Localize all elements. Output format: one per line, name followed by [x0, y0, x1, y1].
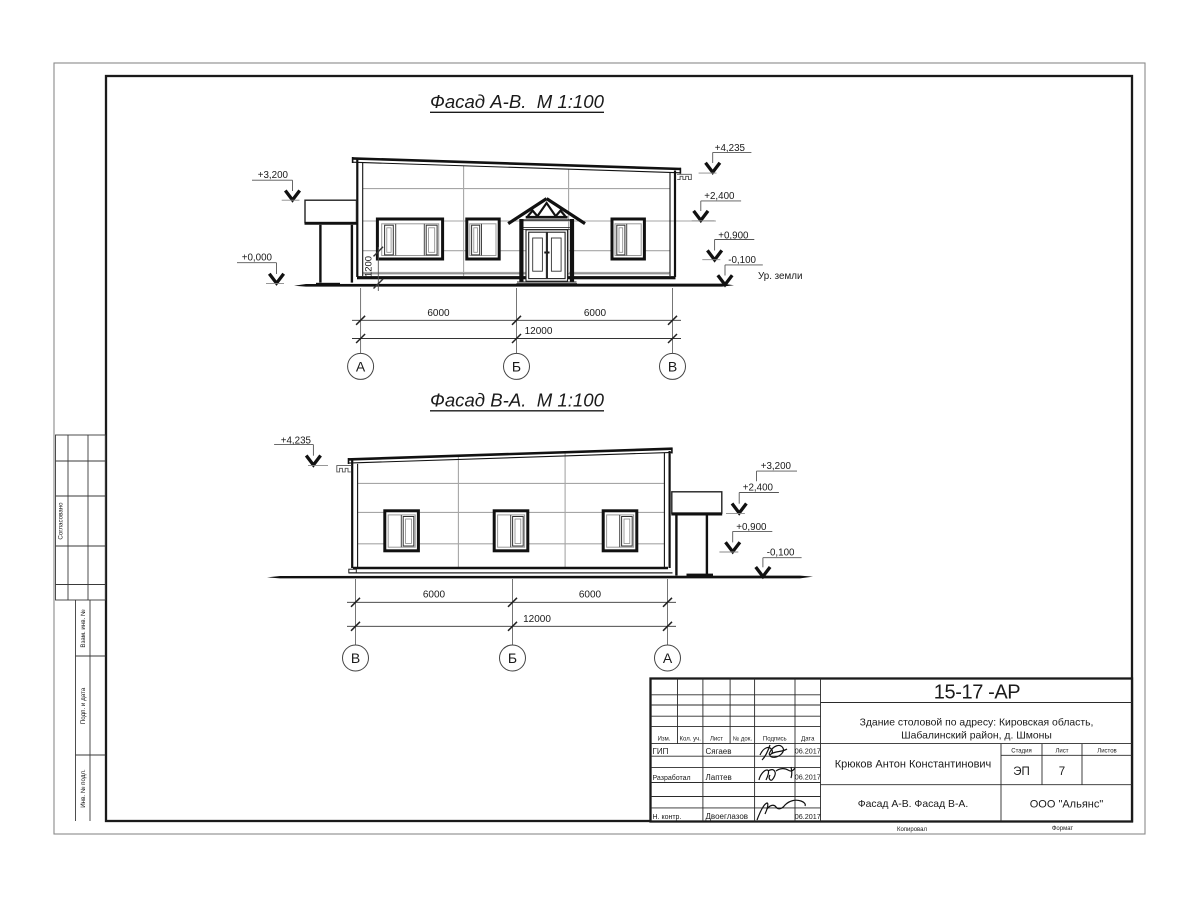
svg-text:+3,200: +3,200: [258, 170, 289, 181]
svg-text:Здание столовой по адресу: Кир: Здание столовой по адресу: Кировская обл…: [860, 717, 1094, 729]
svg-text:06.2017: 06.2017: [795, 812, 821, 821]
svg-text:ГИП: ГИП: [653, 747, 669, 756]
svg-text:Согласовано: Согласовано: [58, 502, 65, 540]
svg-text:Подп. и дата: Подп. и дата: [80, 687, 87, 724]
svg-text:+2,400: +2,400: [743, 482, 774, 493]
svg-text:6000: 6000: [423, 590, 446, 601]
svg-text:Подпись: Подпись: [763, 737, 787, 743]
svg-text:Инв. № подл.: Инв. № подл.: [80, 769, 87, 808]
svg-text:15-17 -АР: 15-17 -АР: [934, 682, 1021, 704]
svg-text:Лист: Лист: [710, 737, 723, 743]
svg-text:А: А: [356, 358, 366, 374]
svg-text:Фасад А-В. Фасад В-А.: Фасад А-В. Фасад В-А.: [858, 799, 969, 810]
svg-text:+3,200: +3,200: [761, 461, 792, 472]
svg-text:ЭП: ЭП: [1013, 766, 1030, 778]
svg-text:+2,400: +2,400: [704, 191, 735, 202]
svg-text:В: В: [668, 358, 677, 374]
svg-text:-0,100: -0,100: [728, 255, 756, 266]
svg-text:Листов: Листов: [1097, 749, 1117, 755]
svg-text:06.2017: 06.2017: [795, 773, 821, 782]
svg-text:Формат: Формат: [1052, 826, 1074, 832]
svg-text:ООО "Альянс": ООО "Альянс": [1030, 799, 1104, 811]
svg-text:-0,100: -0,100: [767, 548, 795, 559]
svg-text:06.2017: 06.2017: [795, 747, 821, 756]
svg-text:Сягаев: Сягаев: [706, 747, 732, 756]
svg-text:Копировал: Копировал: [897, 827, 928, 833]
svg-text:7: 7: [1059, 766, 1065, 778]
svg-text:Лаптев: Лаптев: [706, 773, 732, 782]
svg-text:1200: 1200: [364, 256, 375, 277]
svg-text:Дата: Дата: [801, 737, 815, 743]
svg-text:6000: 6000: [579, 590, 602, 601]
svg-text:Крюков Антон Константинович: Крюков Антон Константинович: [835, 759, 992, 771]
svg-text:12000: 12000: [523, 614, 551, 625]
svg-text:6000: 6000: [427, 308, 450, 319]
svg-text:Ур. земли: Ур. земли: [758, 271, 802, 282]
svg-text:Изм.: Изм.: [658, 737, 671, 743]
svg-text:Двоеглазов: Двоеглазов: [706, 812, 749, 821]
svg-text:Фасад В-А. М 1:100: Фасад В-А. М 1:100: [430, 390, 605, 411]
svg-text:№ док.: № док.: [733, 736, 753, 743]
svg-text:+0,000: +0,000: [242, 253, 273, 264]
svg-text:Шабалинский район, д. Шмоны: Шабалинский район, д. Шмоны: [901, 730, 1052, 742]
svg-text:6000: 6000: [584, 308, 607, 319]
svg-text:А: А: [663, 650, 673, 666]
svg-text:Взам. инв. №: Взам. инв. №: [80, 609, 87, 648]
svg-text:Лист: Лист: [1055, 749, 1068, 755]
svg-text:12000: 12000: [525, 326, 553, 337]
svg-text:Б: Б: [508, 650, 517, 666]
svg-text:Кол. уч.: Кол. уч.: [680, 737, 702, 743]
svg-text:Фасад А-В. М 1:100: Фасад А-В. М 1:100: [430, 91, 605, 112]
svg-text:Разработал: Разработал: [653, 774, 691, 782]
svg-text:Б: Б: [512, 358, 521, 374]
svg-text:Н. контр.: Н. контр.: [653, 814, 682, 821]
svg-text:В: В: [351, 650, 360, 666]
svg-text:Стадия: Стадия: [1011, 749, 1031, 755]
